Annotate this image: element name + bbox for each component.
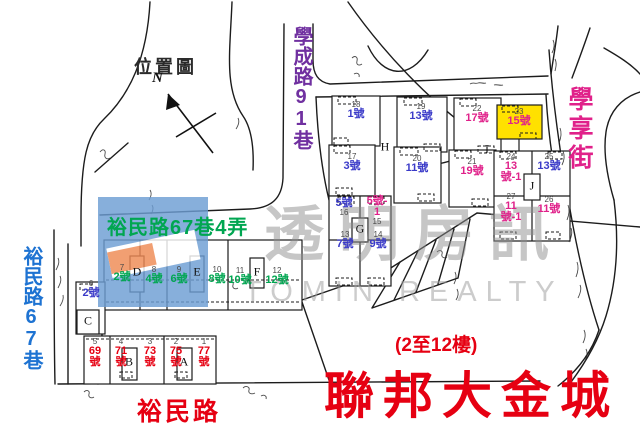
plot-lot21: 2119號 [460,158,483,177]
block-D: D [133,265,142,280]
plot-lot5: 569號 [88,338,103,368]
plot-lot13: 137號 [336,231,353,250]
plot-lot8: 84號 [145,266,162,285]
floors-note: (2至12樓) [395,330,477,357]
plot-lot18: 181號 [347,101,364,120]
compass-north-label: N [152,70,163,87]
compass-icon [166,94,216,153]
plot-lot19: 1913號 [409,103,432,122]
plot-lot11: 1110號 [228,267,251,286]
street-xuecheng-rd-lane91: 學成路91巷 [291,26,311,150]
plot-lot15: 5號-115 [366,196,388,226]
plot-lot25: 2513號 [537,153,560,172]
plot-lot16: 5號16 [335,198,352,217]
plot-lot9: 96號 [170,266,187,285]
plot-lot22: 2217號 [465,105,488,124]
street-yumin-rd-lane67: 裕民路67巷 [21,246,41,370]
street-yumin-rd: 裕民路 [137,392,221,428]
plot-lot26: 2611號 [538,196,561,215]
plot-lot14: 149號 [369,231,386,250]
plot-lot3: 373號 [143,338,158,368]
location-map: 透明房訊 TOMIN REALTY 位置圖 N 學成路91巷 學享街 裕民路67… [0,0,640,439]
map-title: 位置圖 [134,53,197,79]
plot-lot12: 1212號 [265,267,288,286]
plot-lot1: 177號 [197,338,212,368]
block-H: H [381,140,390,155]
watermark-english: TOMIN REALTY [244,276,564,309]
project-name: 聯邦大金城 [324,356,619,428]
block-J: J [530,179,535,194]
plot-lot20: 2011號 [406,155,429,174]
street-yumin-lane67-alley4: 裕民路67巷4弄 [107,211,248,240]
plot-lot6: 62號 [82,280,99,299]
street-xuexiang-st: 學享街 [566,86,591,173]
plot-lot24: 2413號-1 [498,153,524,183]
block-E: E [193,265,200,280]
plot-lot2: 275號 [169,338,184,368]
plot-lot17: 173號 [343,153,360,172]
plot-lot7: 72號 [113,264,130,283]
plot-lot10: 108號 [208,266,225,285]
plot-lot4: 471號 [114,338,129,368]
block-F: F [254,265,261,280]
block-G: G [356,222,365,237]
block-C: C [84,314,92,329]
block-I: I [485,142,489,157]
plot-lot27: 2711號-1 [498,193,524,223]
plot-lot23-highlighted: 2315號 [507,108,530,127]
